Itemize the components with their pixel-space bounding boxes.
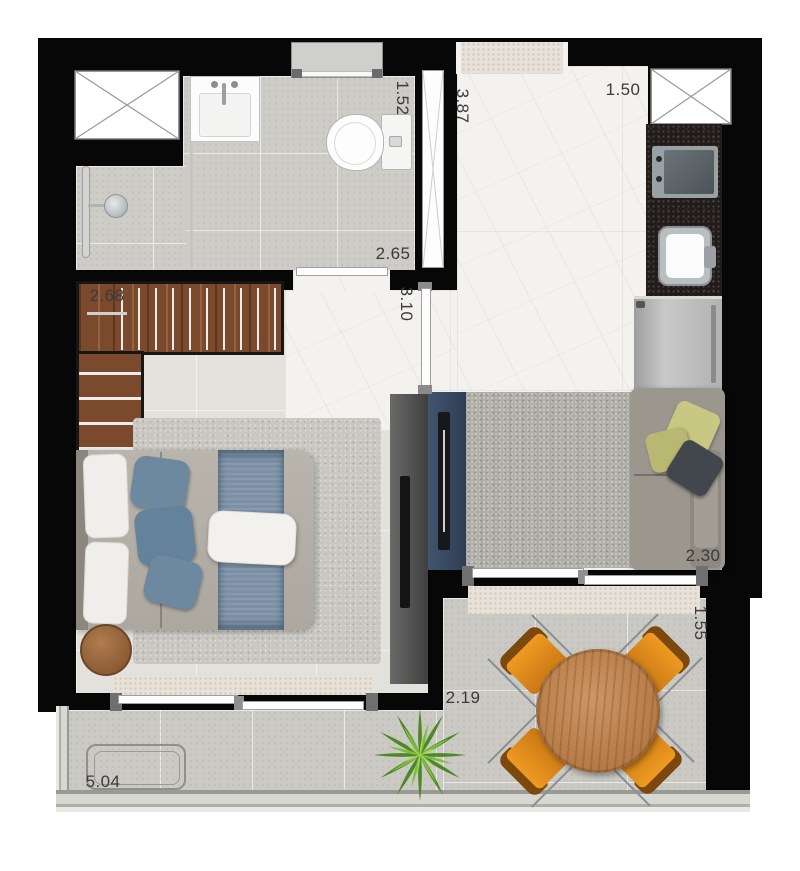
living-tv-stand-line xyxy=(443,430,445,532)
plant xyxy=(370,705,470,805)
dim-wardrobe-length: 2.68 xyxy=(84,286,130,306)
bed-pillow-white-1 xyxy=(83,453,130,538)
fridge xyxy=(634,296,722,390)
cooktop xyxy=(652,146,718,198)
bathroom-sink xyxy=(190,76,260,142)
faucet-handle-right xyxy=(231,81,238,88)
bed-pillow-center xyxy=(207,510,298,567)
floor-plan: 1.52 3.87 1.50 2.65 3.10 2.68 2.30 1.55 … xyxy=(0,0,800,871)
faucet-spout xyxy=(222,83,226,105)
living-door-cap-right xyxy=(696,566,708,586)
terrace-door-panel-1 xyxy=(118,695,238,704)
shower-floor xyxy=(76,166,186,270)
faucet-handle-left xyxy=(211,81,218,88)
cooktop-glass xyxy=(664,150,714,194)
toilet-seat-line xyxy=(334,122,376,165)
shower-glass xyxy=(190,142,193,268)
dim-hall-length: 3.10 xyxy=(396,280,416,328)
living-door-panel-2 xyxy=(584,575,698,585)
dim-bathroom-width: 1.52 xyxy=(392,74,412,122)
kitchen-sink xyxy=(658,226,712,286)
entry-door xyxy=(422,70,444,268)
shaft-box-left xyxy=(74,70,180,140)
entry-mat xyxy=(456,42,568,74)
living-tv xyxy=(438,412,450,550)
dim-entry-hall-length: 3.87 xyxy=(452,80,472,132)
bathroom-window xyxy=(291,42,383,78)
living-threshold xyxy=(468,586,700,614)
living-door-panel-1 xyxy=(472,568,584,578)
shaft-box-right xyxy=(650,68,732,125)
fridge-hinge xyxy=(636,301,645,308)
dining-table xyxy=(536,649,660,773)
window-bracket-right xyxy=(372,69,382,78)
dim-kitchen-width: 1.50 xyxy=(602,80,644,100)
window-bracket-left xyxy=(292,69,302,78)
bed-pillow-blue-1 xyxy=(129,454,192,513)
kitchen-faucet xyxy=(704,246,716,268)
terrace-threshold xyxy=(113,676,373,695)
dim-balcony-width: 2.19 xyxy=(442,688,484,708)
window-glass-line xyxy=(300,71,376,77)
cooktop-knob-1 xyxy=(656,156,662,162)
dim-bathroom-length: 2.65 xyxy=(372,244,414,264)
wardrobe-hanger-rail xyxy=(121,288,279,350)
shower-head xyxy=(104,194,128,218)
bed-pillow-white-2 xyxy=(83,541,130,624)
bedroom-tv xyxy=(400,476,410,608)
dim-terrace-length: 5.04 xyxy=(82,772,124,792)
bed-pillow-blue-3 xyxy=(141,552,205,612)
dim-living-room-width: 2.30 xyxy=(682,546,724,566)
fridge-handle xyxy=(711,305,716,383)
sofa xyxy=(630,388,725,570)
hall-sliding-door xyxy=(421,288,431,388)
bathroom-sliding-door xyxy=(296,267,388,276)
cooktop-knob-2 xyxy=(656,176,662,182)
shower-grab-bar xyxy=(82,166,90,258)
dim-balcony-depth: 1.55 xyxy=(690,600,710,646)
hall-door-cap-bottom xyxy=(418,385,432,394)
wardrobe-rod xyxy=(87,312,127,315)
terrace-door-panel-2 xyxy=(242,701,364,710)
toilet-flush-button xyxy=(389,136,402,147)
kitchen-sink-basin xyxy=(666,234,704,278)
bed xyxy=(76,450,314,630)
side-table-stool xyxy=(80,624,132,676)
